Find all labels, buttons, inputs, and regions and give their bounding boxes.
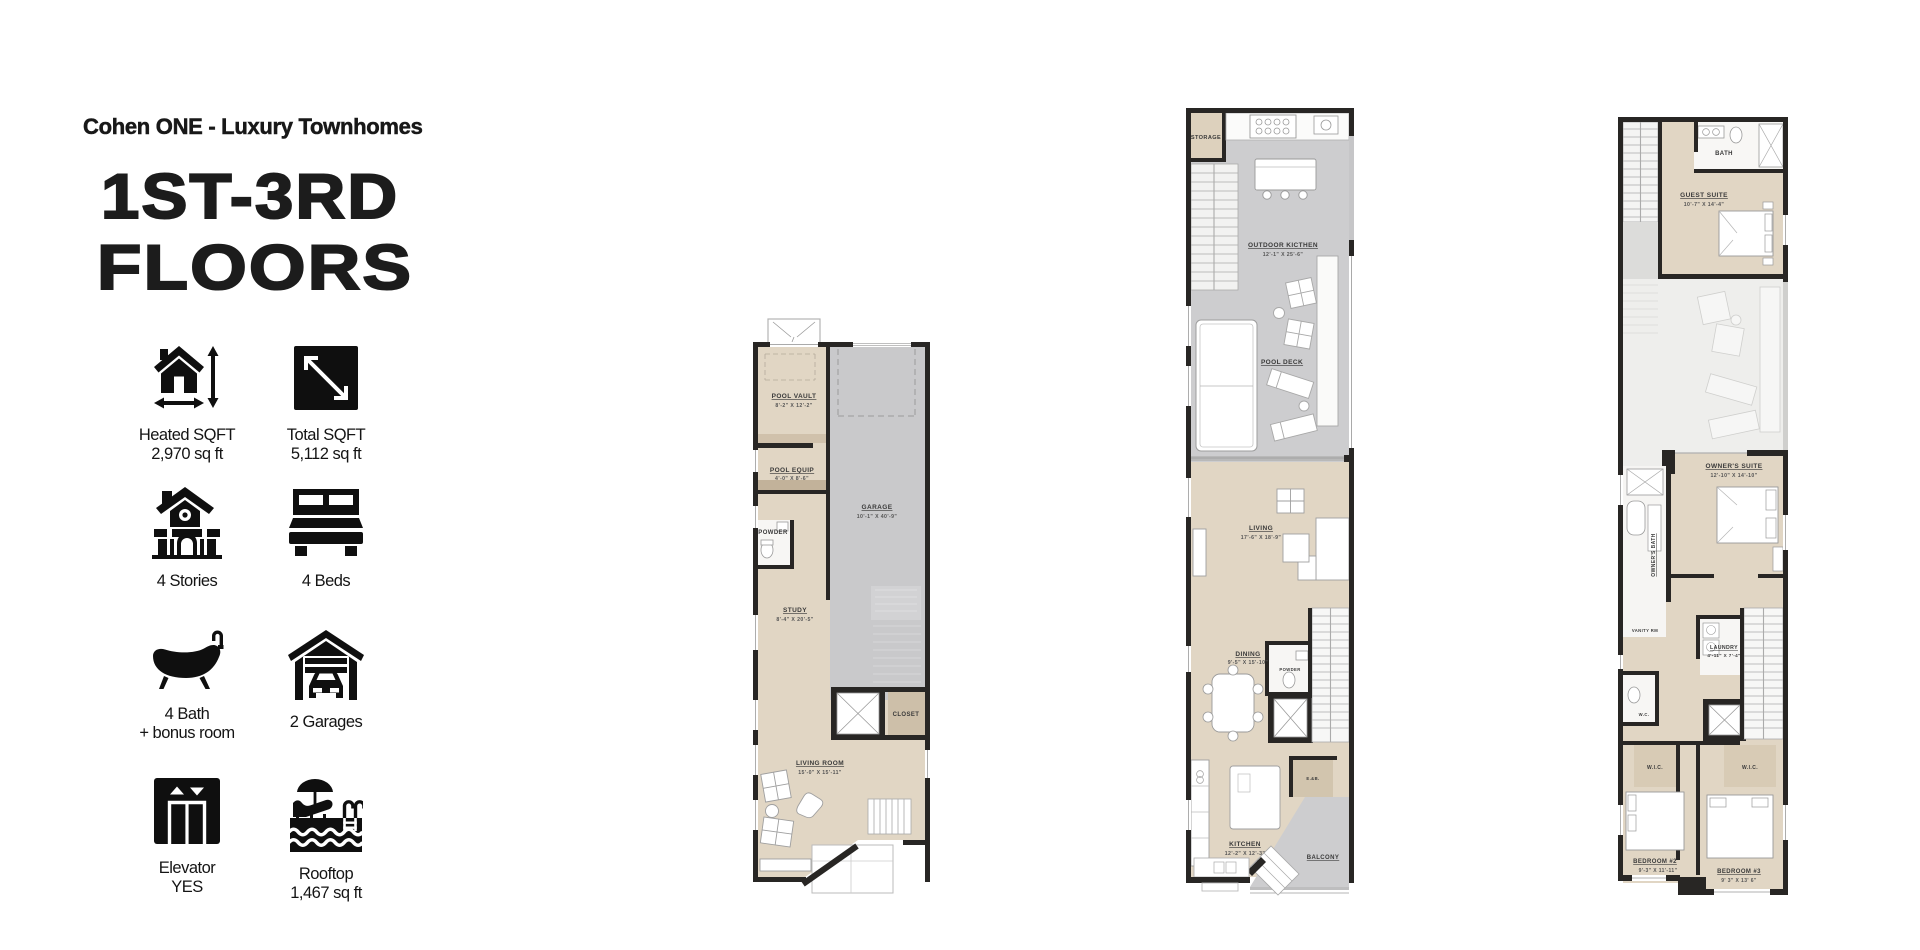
svg-text:12'-1" X 25'-6": 12'-1" X 25'-6" [1263, 252, 1304, 258]
svg-text:W.C.: W.C. [1639, 712, 1650, 717]
svg-text:POOL EQUIP: POOL EQUIP [770, 467, 815, 474]
svg-text:DINING: DINING [1235, 651, 1260, 658]
svg-text:12'-10" X 14'-10": 12'-10" X 14'-10" [1710, 473, 1757, 479]
svg-text:4'-11" X 7'-4": 4'-11" X 7'-4" [1707, 653, 1740, 658]
svg-text:BEDROOM #2: BEDROOM #2 [1633, 859, 1677, 865]
svg-text:LIVING ROOM: LIVING ROOM [796, 760, 844, 767]
svg-text:17'-6" X 18'-9": 17'-6" X 18'-9" [1241, 535, 1282, 541]
svg-text:10'-1" X 40'-9": 10'-1" X 40'-9" [857, 514, 898, 520]
svg-text:4'-0" X 8'-6": 4'-0" X 8'-6" [775, 476, 809, 482]
svg-text:10'-7" X 14'-4": 10'-7" X 14'-4" [1684, 202, 1725, 208]
svg-text:POWDER: POWDER [1279, 667, 1300, 672]
svg-text:BATH: BATH [1715, 151, 1733, 157]
svg-text:BEDROOM #3: BEDROOM #3 [1717, 869, 1761, 875]
svg-text:8'-4" X 20'-5": 8'-4" X 20'-5" [776, 617, 813, 623]
svg-text:9' 3" X 13' 6": 9' 3" X 13' 6" [1721, 878, 1757, 884]
svg-text:OWNER'S SUITE: OWNER'S SUITE [1706, 463, 1763, 470]
svg-text:GUEST SUITE: GUEST SUITE [1680, 192, 1728, 199]
svg-text:STUDY: STUDY [783, 607, 807, 614]
svg-text:15'-0" X 15'-11": 15'-0" X 15'-11" [798, 770, 842, 776]
svg-text:VANITY RM: VANITY RM [1632, 628, 1658, 633]
svg-text:9'-5" X 15'-10": 9'-5" X 15'-10" [1228, 660, 1269, 666]
svg-text:LAUNDRY: LAUNDRY [1710, 645, 1738, 651]
svg-text:BALCONY: BALCONY [1307, 855, 1339, 861]
svg-text:GARAGE: GARAGE [862, 504, 893, 511]
svg-text:CLOSET: CLOSET [893, 712, 920, 718]
svg-text:12'-2" X 12'-3": 12'-2" X 12'-3" [1225, 851, 1266, 857]
svg-text:9'-3" X 11'-11": 9'-3" X 11'-11" [1639, 868, 1678, 874]
svg-text:8'-2" X 12'-2": 8'-2" X 12'-2" [775, 403, 812, 409]
svg-text:W.I.C.: W.I.C. [1647, 765, 1663, 771]
svg-text:POWDER: POWDER [758, 530, 788, 536]
svg-text:E.&B.: E.&B. [1306, 776, 1319, 781]
svg-text:OUTDOOR KICTHEN: OUTDOOR KICTHEN [1248, 242, 1318, 249]
svg-text:STORAGE: STORAGE [1191, 135, 1221, 141]
svg-text:W.I.C.: W.I.C. [1742, 765, 1758, 771]
svg-text:KITCHEN: KITCHEN [1229, 841, 1261, 848]
svg-text:OWNER'S BATH: OWNER'S BATH [1651, 533, 1657, 576]
svg-text:POOL VAULT: POOL VAULT [772, 393, 817, 400]
svg-text:POOL DECK: POOL DECK [1261, 359, 1303, 366]
svg-text:LIVING: LIVING [1249, 525, 1273, 532]
